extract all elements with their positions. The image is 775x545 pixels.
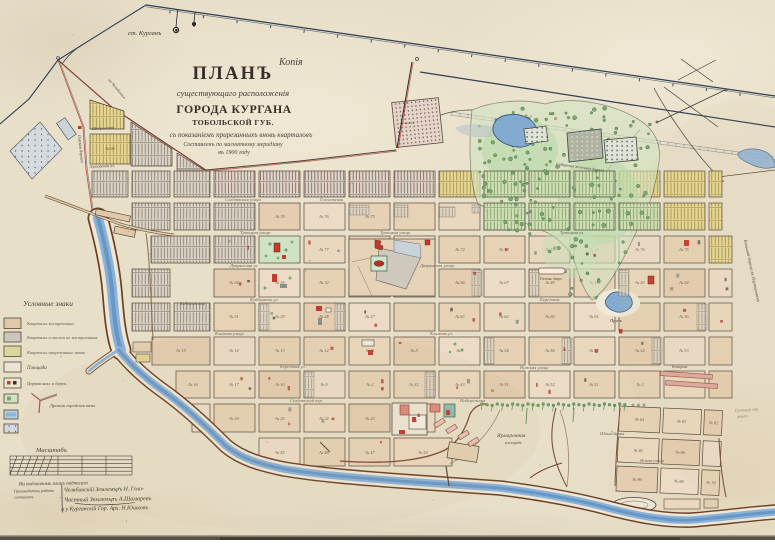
svg-text:Нижняя улица: Нижняя улица bbox=[519, 365, 549, 370]
svg-text:№ 72: № 72 bbox=[454, 247, 464, 252]
svg-text:№ 54: № 54 bbox=[498, 348, 508, 353]
svg-text:Условные знаки: Условные знаки bbox=[23, 299, 73, 308]
svg-text:Новая улица: Новая улица bbox=[639, 458, 665, 463]
svg-text:Кварталы прирезанные вновь: Кварталы прирезанные вновь bbox=[26, 350, 85, 355]
svg-text:№ 34: № 34 bbox=[228, 280, 238, 285]
svg-text:въ 1900 году: въ 1900 году bbox=[218, 149, 250, 156]
svg-text:№ 89: № 89 bbox=[631, 477, 642, 482]
svg-text:Хабаровская: Хабаровская bbox=[179, 301, 205, 306]
svg-text:№ 29: № 29 bbox=[274, 314, 285, 319]
svg-text:Троицкая улица: Троицкая улица bbox=[380, 230, 411, 235]
svg-text:ст. Курганъ: ст. Курганъ bbox=[128, 30, 162, 37]
svg-text:№ 60: № 60 bbox=[544, 314, 555, 319]
svg-text:Кварталы застроенные: Кварталы застроенные bbox=[26, 321, 74, 326]
svg-text:Составленъ по магнитному мерид: Составленъ по магнитному меридiану bbox=[183, 141, 283, 148]
svg-text:ГОРОДА КУРГАНА: ГОРОДА КУРГАНА bbox=[176, 102, 291, 116]
svg-text:Копiя: Копiя bbox=[278, 57, 303, 68]
svg-text:№ 96: № 96 bbox=[104, 146, 115, 151]
svg-text:№ 84: № 84 bbox=[634, 417, 644, 422]
svg-text:Береговая: Береговая bbox=[539, 297, 560, 302]
svg-text:существующаго расположенiя: существующаго расположенiя bbox=[177, 88, 289, 98]
svg-text:составлялъ: составлялъ bbox=[14, 494, 34, 499]
svg-text:Куйбышева ул.: Куйбышева ул. bbox=[249, 297, 279, 302]
svg-text:Кварталы и мъста не застроенны: Кварталы и мъста не застроенныя bbox=[26, 335, 97, 340]
svg-text:№ 61: № 61 bbox=[588, 314, 598, 319]
svg-text:№ 76: № 76 bbox=[318, 214, 329, 219]
svg-text:№ 56: № 56 bbox=[544, 348, 555, 353]
svg-text:Солдатская улица: Солдатская улица bbox=[225, 197, 261, 202]
svg-text:№ 67: № 67 bbox=[498, 280, 509, 285]
svg-text:Гостин. дворъ: Гостин. дворъ bbox=[539, 277, 562, 281]
svg-text:,: , bbox=[126, 518, 127, 523]
svg-text:Шишкินская: Шишкินская bbox=[599, 431, 624, 436]
svg-text:№ 66: № 66 bbox=[454, 280, 465, 285]
svg-text:№ 88: № 88 bbox=[673, 478, 684, 483]
svg-text:Троицкая улица: Троицкая улица bbox=[240, 230, 271, 235]
svg-text:№ 63: № 63 bbox=[454, 314, 464, 319]
svg-text:№ 51: № 51 bbox=[588, 382, 598, 387]
svg-text:ПЛАНЪ: ПЛАНЪ bbox=[192, 64, 273, 84]
svg-text:№ 31: № 31 bbox=[228, 314, 238, 319]
svg-text:Дворянская улица: Дворянская улица bbox=[419, 263, 455, 268]
svg-text:Дворянская ул.: Дворянская ул. bbox=[229, 263, 259, 268]
svg-text:Площади: Площади bbox=[26, 366, 47, 371]
svg-text:№ 52: № 52 bbox=[544, 382, 554, 387]
svg-text:съ показанiемъ прирезанныхъ вн: съ показанiемъ прирезанныхъ вновь кварта… bbox=[170, 131, 313, 139]
svg-text:Троицкая ул.: Троицкая ул. bbox=[560, 230, 584, 235]
svg-text:ТОБОЛЬСКОЙ ГУБ.: ТОБОЛЬСКОЙ ГУБ. bbox=[192, 118, 274, 127]
svg-text:Климова ул.: Климова ул. bbox=[429, 331, 453, 336]
svg-text:№ 78: № 78 bbox=[274, 214, 285, 219]
svg-text:Гоголевская: Гоголевская bbox=[319, 197, 343, 202]
svg-text:Производитель работъ: Производитель работъ bbox=[13, 488, 54, 494]
svg-text:№ 32: № 32 bbox=[318, 280, 328, 285]
svg-text:№ 27: № 27 bbox=[364, 314, 375, 319]
svg-text:№ 85: № 85 bbox=[633, 448, 643, 453]
svg-text:№ 77: № 77 bbox=[318, 247, 329, 252]
